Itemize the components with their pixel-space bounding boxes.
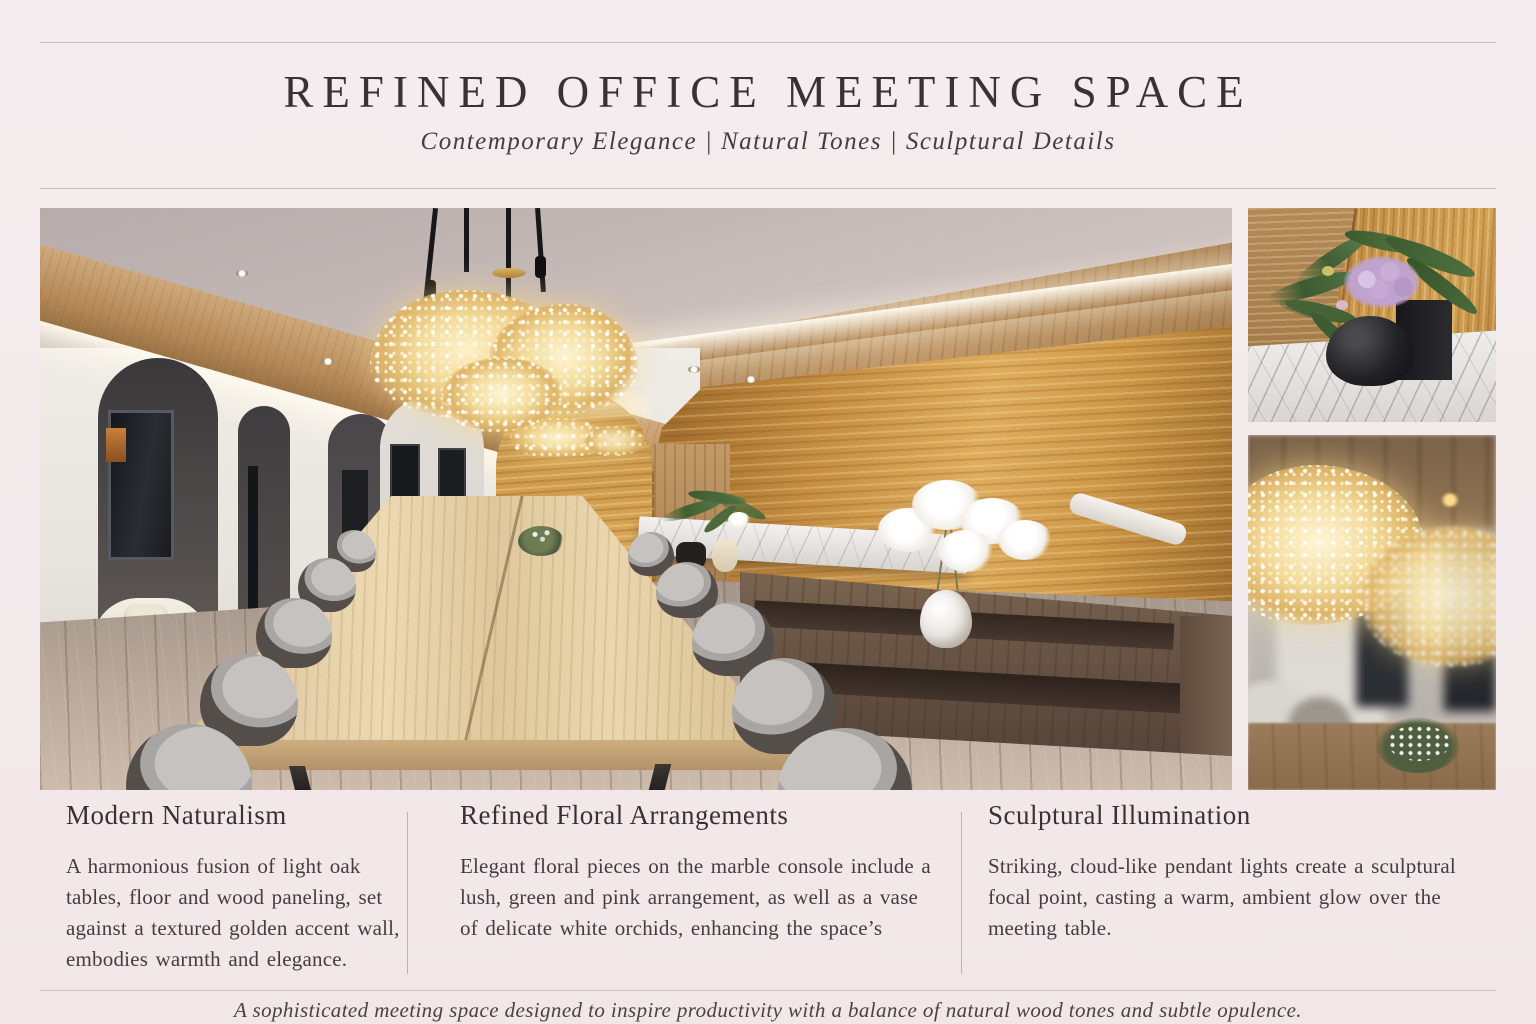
downlight [688,366,700,373]
floral-detail-photo [1248,208,1496,422]
orchid-vase [920,590,972,648]
yellow-accent [1322,266,1334,276]
column-divider [961,812,962,974]
design-board: REFINED OFFICE MEETING SPACE Contemporar… [0,0,1536,1024]
downlight [745,376,757,383]
top-rule [40,42,1496,43]
pendant-detail-photo [1248,435,1496,790]
plant-vase [712,538,738,572]
feature-modern-naturalism: Modern Naturalism A harmonious fusion of… [66,800,406,975]
feature-floral-arrangements: Refined Floral Arrangements Elegant flor… [460,800,938,944]
page-title: REFINED OFFICE MEETING SPACE [0,66,1536,118]
table-seam [455,490,525,783]
feature-body: Elegant floral pieces on the marble cons… [460,851,938,944]
main-meeting-room-photo [40,208,1232,790]
feature-body: Striking, cloud-like pendant lights crea… [988,851,1486,944]
rod-connector [535,256,546,278]
lounge-art [106,428,126,462]
downlight [236,270,248,277]
downlight [322,358,334,365]
feature-heading: Refined Floral Arrangements [460,800,938,831]
centerpiece-flowers [526,528,556,544]
black-vase [1326,316,1414,386]
inner-pendant-light [584,426,646,456]
pendant-rod [464,208,469,272]
feature-sculptural-illumination: Sculptural Illumination Striking, cloud-… [988,800,1486,944]
purple-hydrangea [1344,256,1420,308]
orchid-bloom [998,520,1052,560]
blurred-table [1248,723,1496,790]
page-subtitle: Contemporary Elegance | Natural Tones | … [0,128,1536,156]
orchid-bloom [728,512,750,528]
console-end-panel [1180,616,1232,756]
footer-rule [40,990,1496,991]
footer-caption: A sophisticated meeting space designed t… [0,998,1536,1023]
brass-ceiling-mount [492,268,526,278]
header-rule [40,188,1496,189]
pink-accent [1336,300,1348,310]
orchid-bloom [938,530,994,572]
recessed-light-glow [1440,493,1460,507]
feature-body: A harmonious fusion of light oak tables,… [66,851,406,975]
column-divider [407,812,408,974]
babys-breath-flowers [1388,725,1450,761]
feature-heading: Sculptural Illumination [988,800,1486,831]
feature-heading: Modern Naturalism [66,800,406,831]
